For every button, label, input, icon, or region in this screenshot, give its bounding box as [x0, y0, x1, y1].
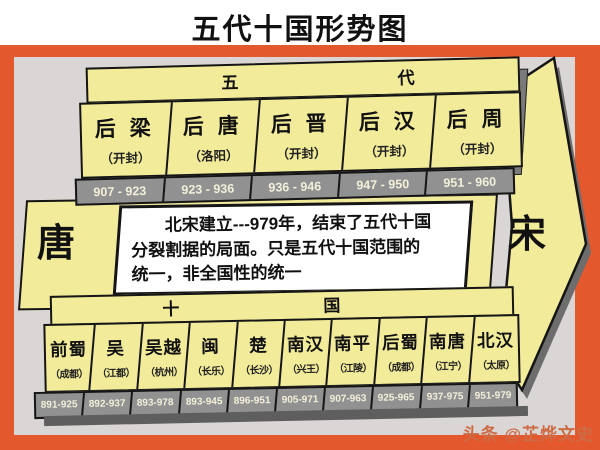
note-box: 北宋建立---979年，结束了五代十国 分裂割据的局面。只是五代十国范围的 统一…: [113, 200, 474, 295]
kingdom-capital: （长乐）: [192, 362, 230, 378]
kingdom-name: 南唐: [429, 328, 467, 354]
dynasty-capital: （开封）: [452, 138, 502, 158]
era-song-label: 宋: [499, 203, 555, 258]
dynasty-capital: （洛阳）: [188, 145, 238, 165]
years-value: 951-979: [474, 390, 511, 402]
dynasty-cell: 后 唐 （洛阳）: [165, 100, 259, 174]
kingdom-capital: （长沙）: [239, 361, 277, 377]
kingdom-capital: （江都）: [97, 364, 135, 380]
kingdom-name: 南汉: [287, 331, 325, 357]
kingdom-cell: 南汉 （兴王）: [278, 320, 331, 386]
years-value: 907-963: [330, 393, 367, 405]
note-line-2: 分裂割据的局面。只是五代十国范围的: [131, 234, 455, 263]
years-cell: 893-978: [129, 391, 179, 415]
five-dynasties-diagram-page: 五代十国形势图 五 代 后 梁 （开封） 后 唐 （洛阳） 后 晋: [0, 0, 600, 450]
years-cell: 947 - 950: [337, 172, 426, 197]
header-char-guo: 国: [323, 291, 341, 316]
years-cell: 893-945: [178, 390, 228, 414]
dynasty-name: 后 唐: [182, 110, 243, 142]
years-value: 892-937: [89, 398, 126, 410]
years-cell: 925-965: [370, 386, 420, 410]
kingdom-name: 吴: [106, 335, 125, 360]
years-value: 936 - 946: [268, 179, 321, 194]
dynasty-name: 后 晋: [270, 107, 331, 139]
kingdom-name: 后蜀: [382, 329, 420, 355]
ten-kingdoms-row: 前蜀 （成都） 吴 （江都） 吴越 （杭州） 闽 （长乐） 楚 （长沙） 南汉 …: [43, 314, 520, 393]
five-dynasties-row: 后 梁 （开封） 后 唐 （洛阳） 后 晋 （开封） 后 汉 （开封） 后 周 …: [79, 91, 523, 179]
kingdom-cell: 吴 （江都）: [89, 324, 142, 390]
diagram-stage: 五 代 后 梁 （开封） 后 唐 （洛阳） 后 晋 （开封） 后 汉 （开封） …: [0, 0, 600, 450]
dynasty-cell: 后 晋 （开封）: [253, 98, 347, 172]
note-line-3: 统一，非全国性的统一: [131, 259, 455, 288]
years-cell: 891-925: [35, 393, 83, 417]
kingdom-name: 闽: [201, 333, 220, 358]
dynasty-capital: （开封）: [100, 147, 150, 167]
years-value: 896-951: [233, 395, 270, 407]
kingdom-name: 北汉: [476, 327, 514, 353]
years-cell: 896-951: [226, 389, 276, 413]
dynasty-cell: 后 梁 （开封）: [79, 102, 171, 176]
dynasty-cell: 后 周 （开封）: [429, 93, 523, 167]
header-char-wu: 五: [221, 68, 239, 93]
header-char-dai: 代: [397, 64, 415, 89]
years-value: 893-978: [137, 397, 174, 409]
years-value: 947 - 950: [356, 177, 409, 192]
kingdom-capital: （江陵）: [334, 359, 372, 375]
years-cell: 907-963: [322, 387, 372, 411]
kingdom-capital: （江宁）: [429, 357, 467, 373]
dynasty-name: 后 梁: [94, 112, 155, 144]
years-value: 891-925: [41, 399, 78, 411]
years-cell: 937-975: [419, 385, 469, 409]
dynasty-name: 后 周: [446, 103, 507, 135]
kingdom-capital: （成都）: [382, 358, 420, 374]
kingdom-cell: 吴越 （杭州）: [136, 323, 189, 389]
years-cell: 892-937: [81, 392, 131, 416]
years-cell: 951 - 960: [424, 169, 513, 194]
years-cell: 951-979: [467, 384, 517, 408]
dynasty-capital: （开封）: [276, 142, 326, 162]
kingdom-capital: （杭州）: [145, 363, 183, 379]
kingdom-capital: （成都）: [50, 365, 88, 381]
kingdom-name: 吴越: [145, 334, 183, 360]
years-value: 925-965: [378, 392, 415, 404]
kingdom-cell: 南唐 （江宁）: [420, 317, 473, 383]
kingdom-cell: 北汉 （太原）: [468, 316, 521, 382]
kingdom-name: 前蜀: [50, 336, 88, 362]
kingdom-cell: 后蜀 （成都）: [373, 318, 426, 384]
years-cell: 923 - 936: [162, 176, 251, 201]
years-value: 923 - 936: [181, 181, 234, 196]
kingdom-name: 楚: [249, 332, 268, 357]
dynasty-name: 后 汉: [358, 105, 419, 137]
years-value: 907 - 923: [93, 183, 146, 198]
watermark: 头条 @芷烨文史: [462, 420, 594, 445]
kingdom-cell: 前蜀 （成都）: [43, 325, 94, 391]
years-cell: 905-971: [274, 388, 324, 412]
header-char-shi: 十: [162, 295, 180, 320]
dynasty-capital: （开封）: [364, 140, 414, 160]
kingdom-cell: 闽 （长乐）: [184, 322, 237, 388]
years-cell: 907 - 923: [76, 178, 163, 203]
years-cell: 936 - 946: [249, 174, 338, 199]
kingdom-cell: 楚 （长沙）: [231, 321, 284, 387]
kingdom-name: 南平: [334, 330, 372, 356]
years-value: 937-975: [426, 391, 463, 403]
kingdom-capital: （兴王）: [287, 360, 325, 376]
era-tang-label: 唐: [28, 212, 84, 267]
note-text: 北宋建立---979年，结束了五代十国 分裂割据的局面。只是五代十国范围的 统一…: [119, 204, 468, 289]
dynasty-cell: 后 汉 （开封）: [341, 95, 435, 169]
kingdom-cell: 南平 （江陵）: [326, 319, 379, 385]
kingdom-capital: （太原）: [476, 356, 514, 372]
years-value: 905-971: [282, 394, 319, 406]
years-value: 893-945: [185, 396, 222, 408]
years-value: 951 - 960: [444, 174, 497, 189]
